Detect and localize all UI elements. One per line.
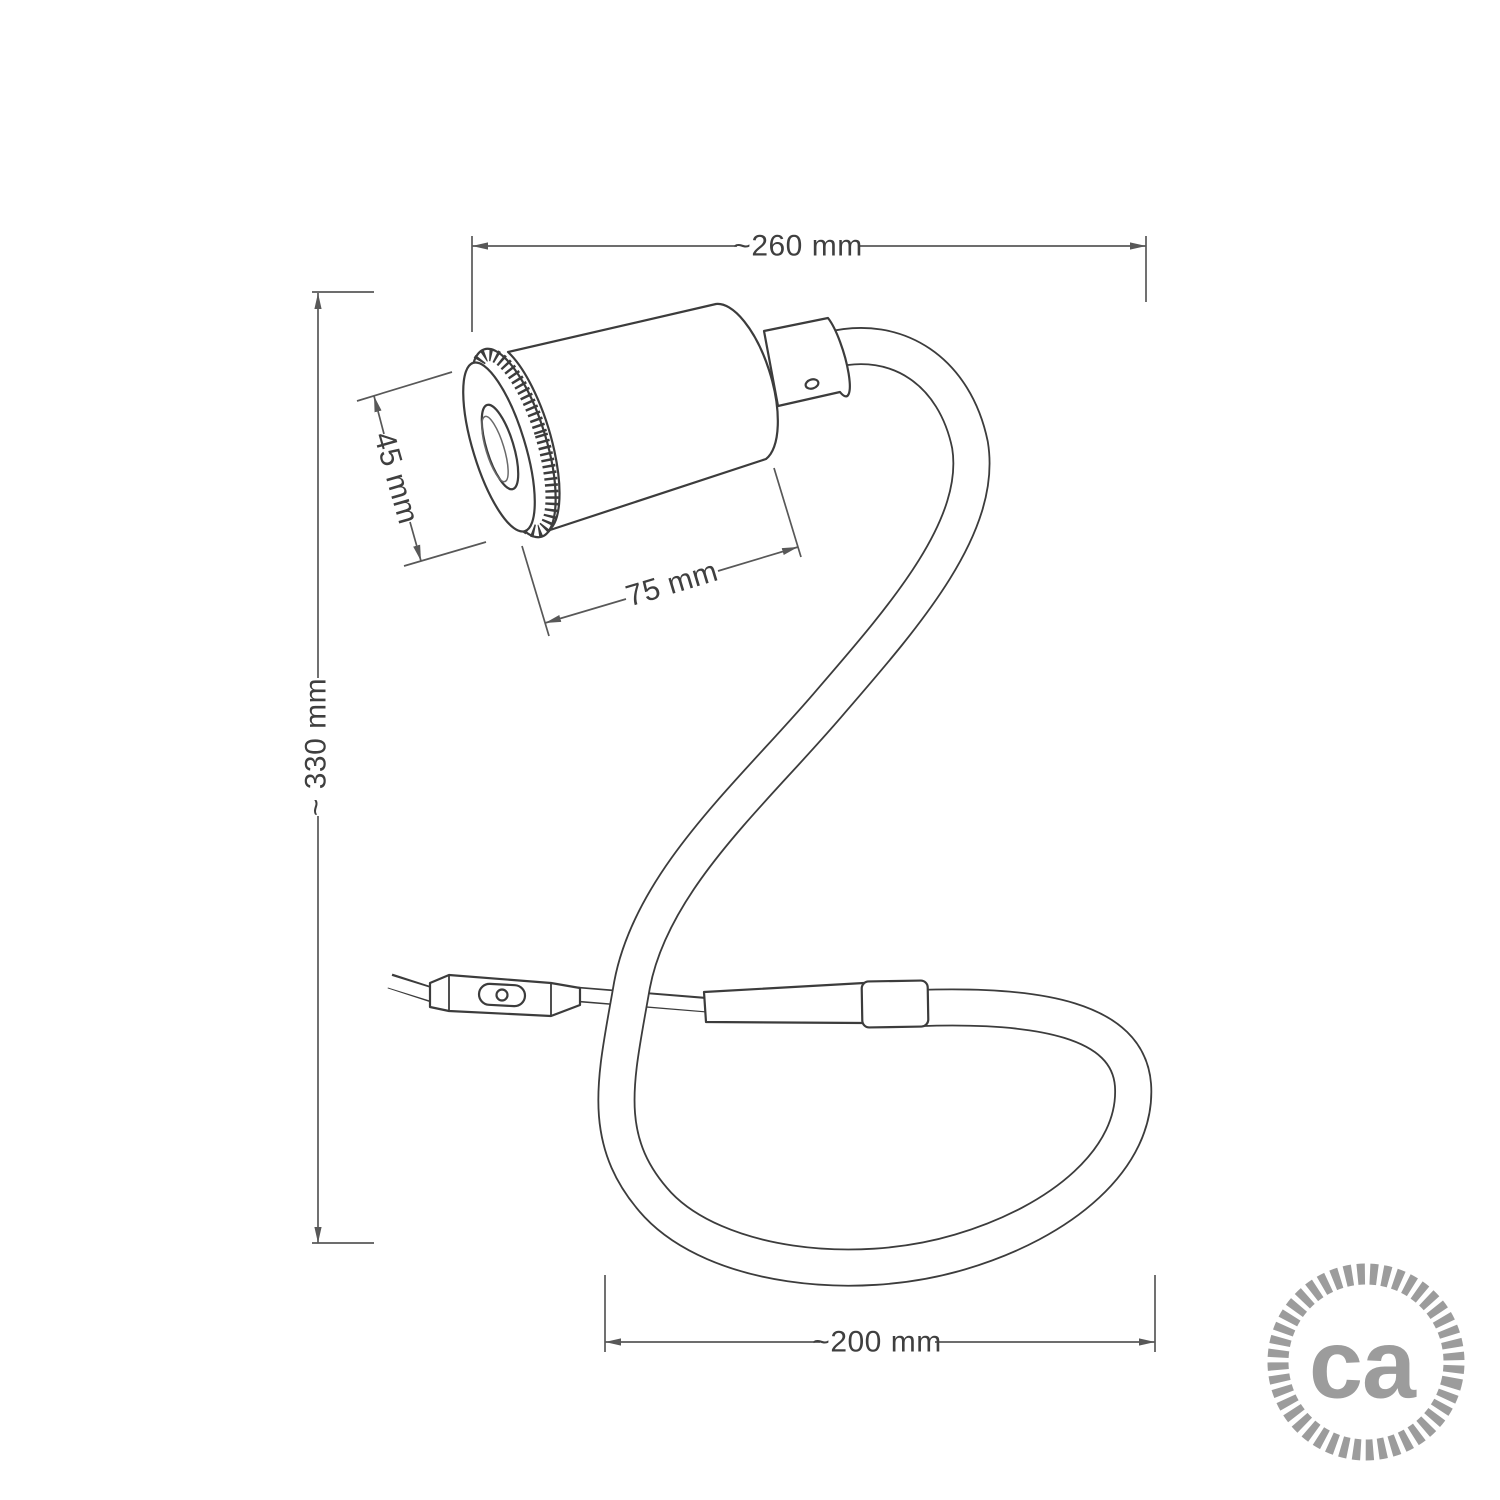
gooseneck-fill [616, 346, 1133, 1268]
brand-logo: ca [1262, 1258, 1471, 1467]
gooseneck-outline [616, 346, 1133, 1268]
lamp-head [448, 304, 849, 546]
gooseneck-tube [616, 346, 1133, 1268]
switch-rocker-dot [497, 990, 508, 1001]
dim-loop-width: ~200 mm [605, 1275, 1155, 1359]
dimension-label: ~ 330 mm [300, 678, 333, 816]
extension-line [774, 468, 801, 557]
dimension-label: ~200 mm [812, 1326, 941, 1359]
logo-text: ca [1309, 1310, 1417, 1419]
dimension-label: 45 mm [367, 428, 425, 528]
extension-line [357, 372, 452, 401]
cord-sleeve [704, 983, 864, 1023]
dimension-line [410, 522, 421, 561]
dimension-line [545, 599, 626, 623]
dim-overall-height: ~ 330 mm [300, 292, 375, 1243]
inline-switch [430, 975, 580, 1016]
dimension-line [718, 547, 798, 571]
dimension-label: 75 mm [622, 555, 722, 614]
dim-overall-width: ~260 mm [472, 230, 1146, 333]
ferrule [862, 980, 929, 1027]
technical-drawing: ~260 mm ~ 330 mm 45 mm 75 mm ~200 mm ca [0, 0, 1500, 1500]
dimension-label: ~260 mm [733, 230, 862, 263]
dimension-line [374, 396, 384, 434]
cord-left-highlight [381, 979, 436, 996]
technical-drawing-page: ~260 mm ~ 330 mm 45 mm 75 mm ~200 mm ca [0, 0, 1500, 1500]
